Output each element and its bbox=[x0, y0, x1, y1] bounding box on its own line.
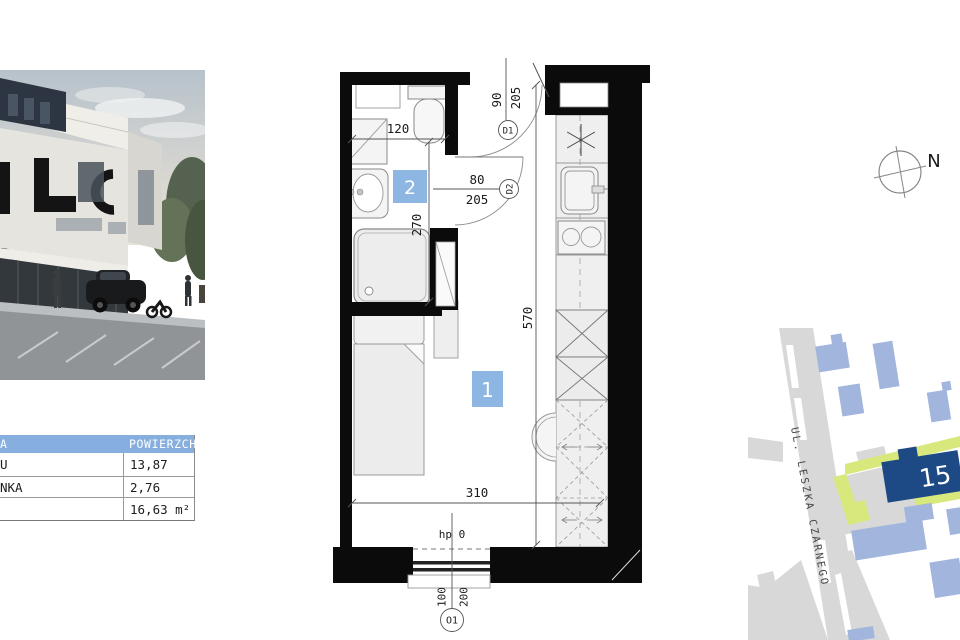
floor-plan: 120 270 80 205 D2 90 205 D1 570 310 hp 0… bbox=[330, 55, 660, 640]
window-sill bbox=[408, 575, 490, 588]
north-compass: N bbox=[866, 140, 958, 206]
site-map: 15 UL. LESZKA CZARNEGO bbox=[748, 328, 960, 640]
table-row: NKA 2,76 bbox=[0, 477, 194, 498]
row-name: NKA bbox=[0, 480, 123, 495]
dim-room-width: 310 bbox=[466, 485, 489, 500]
side-road-stub bbox=[748, 437, 783, 462]
dim-room-length: 570 bbox=[520, 307, 535, 330]
washing-machine bbox=[346, 119, 387, 164]
motorbike bbox=[147, 302, 171, 317]
pavement bbox=[0, 302, 205, 380]
table-row-total: 16,63 m² bbox=[0, 498, 194, 520]
niche bbox=[356, 84, 400, 108]
area-column-header: POWIERZCHNIA bbox=[123, 437, 219, 451]
row-area-value: 2,76 bbox=[123, 477, 194, 497]
dim-bath-depth: 270 bbox=[409, 214, 424, 237]
compass-needle bbox=[896, 146, 905, 198]
door-leaf-open bbox=[436, 242, 455, 306]
shower bbox=[354, 229, 430, 305]
bath-room-number: 2 bbox=[404, 177, 416, 199]
door2-marker-label: D2 bbox=[506, 184, 516, 195]
dim-door1-height: 205 bbox=[508, 87, 523, 110]
bed bbox=[354, 313, 424, 475]
name-column-header: A bbox=[0, 437, 123, 451]
pillow bbox=[354, 313, 424, 344]
window-marker-label: O1 bbox=[446, 616, 458, 627]
stove bbox=[558, 221, 605, 254]
kitchen-counter bbox=[532, 115, 608, 547]
total-area-value: 16,63 m² bbox=[123, 498, 194, 520]
north-label: N bbox=[927, 151, 940, 172]
window bbox=[408, 549, 490, 588]
dim-window-b: 200 bbox=[458, 587, 471, 607]
dim-door1-width: 90 bbox=[489, 92, 504, 107]
dim-window-a: 100 bbox=[436, 587, 449, 607]
dim-door2-width: 80 bbox=[469, 172, 484, 187]
building-number-label: 15 bbox=[917, 460, 953, 494]
shaft bbox=[560, 83, 608, 107]
dim-door2-height: 205 bbox=[466, 192, 489, 207]
wardrobe bbox=[556, 310, 608, 400]
furniture bbox=[354, 300, 458, 475]
building-photo bbox=[0, 70, 205, 380]
area-table-header: A POWIERZCHNIA bbox=[0, 435, 194, 453]
row-area-value: 13,87 bbox=[123, 453, 194, 476]
dim-bath-width: 120 bbox=[387, 121, 410, 136]
main-room-number: 1 bbox=[481, 378, 494, 402]
row-name: U bbox=[0, 457, 123, 472]
door1-marker-label: D1 bbox=[503, 127, 514, 137]
toilet bbox=[408, 86, 450, 143]
table-row: U 13,87 bbox=[0, 453, 194, 477]
area-table: A POWIERZCHNIA U 13,87 NKA 2,76 16,63 m² bbox=[0, 435, 195, 521]
